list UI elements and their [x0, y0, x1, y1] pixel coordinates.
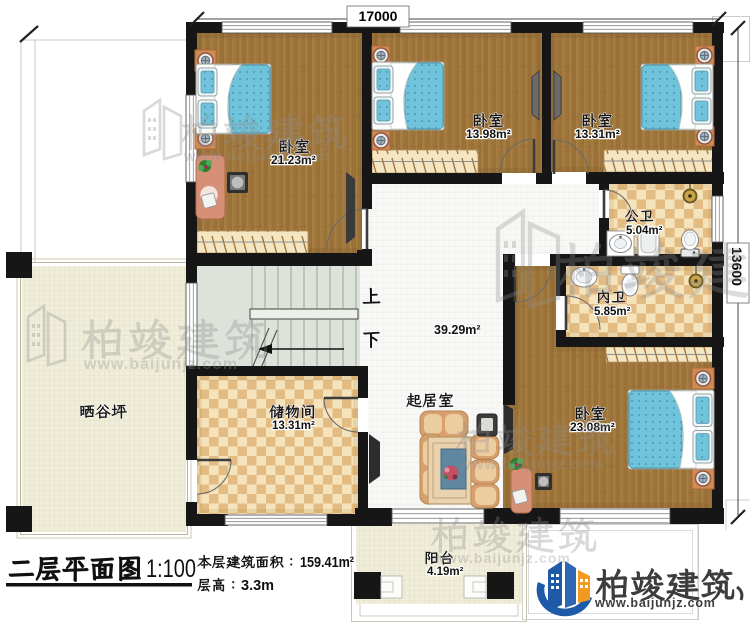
svg-text:5.85m²: 5.85m²: [594, 306, 631, 318]
svg-text:5.04m²: 5.04m²: [626, 225, 663, 237]
svg-text:www.baijunjz.com: www.baijunjz.com: [433, 550, 571, 566]
svg-text:www.baijunjz.com: www.baijunjz.com: [183, 148, 329, 165]
svg-text:13.31m²: 13.31m²: [272, 420, 315, 432]
svg-text:13.98m²: 13.98m²: [466, 127, 511, 141]
svg-text:4.19m²: 4.19m²: [427, 566, 464, 578]
svg-text:13.31m²: 13.31m²: [575, 127, 620, 141]
svg-text:1:100: 1:100: [146, 555, 196, 583]
svg-text:17000: 17000: [359, 8, 398, 24]
svg-text:39.29m²: 39.29m²: [434, 323, 481, 337]
svg-text:159.41m²: 159.41m²: [300, 554, 354, 571]
svg-text:www.baijunjz.com: www.baijunjz.com: [594, 596, 716, 610]
svg-text:www.baijunjz.com: www.baijunjz.com: [83, 356, 238, 373]
svg-text:3.3m: 3.3m: [241, 578, 274, 594]
svg-text:www.baijunjz.com: www.baijunjz.com: [458, 456, 604, 473]
